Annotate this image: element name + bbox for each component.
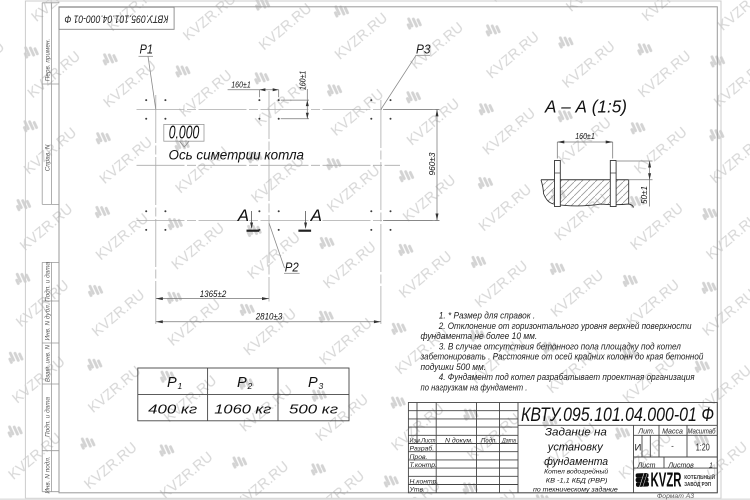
svg-text:Котел водогрейный: Котел водогрейный — [544, 468, 609, 476]
svg-text:400 кг: 400 кг — [148, 403, 197, 417]
svg-text:забетонировать . Расстояние от: забетонировать . Расстояние от осей край… — [420, 352, 704, 362]
svg-text:установку: установку — [547, 441, 604, 453]
svg-text:Подп.: Подп. — [481, 437, 497, 445]
svg-text:фундамента не более 10 мм.: фундамента не более 10 мм. — [421, 331, 538, 341]
svg-text:1060 кг: 1060 кг — [214, 403, 271, 417]
svg-text:N докум.: N докум. — [445, 437, 473, 445]
svg-text:И: И — [634, 443, 641, 454]
svg-text:Лит.: Лит. — [637, 428, 654, 435]
svg-text:Взам. инв. N: Взам. инв. N — [44, 345, 51, 383]
svg-text:Изм.Лист: Изм.Лист — [410, 438, 436, 445]
svg-text:500 кг: 500 кг — [289, 403, 338, 417]
svg-text:KVZR: KVZR — [651, 470, 682, 492]
svg-text:Инв. N дубл.: Инв. N дубл. — [43, 304, 51, 341]
svg-text:Ось симетрии котла: Ось симетрии котла — [169, 148, 305, 163]
svg-text:50±1: 50±1 — [639, 186, 649, 204]
svg-text:3. В случае отсутствия бетонно: 3. В случае отсутствия бетонного пола пл… — [439, 341, 682, 351]
svg-text:Подп. и дата: Подп. и дата — [43, 262, 51, 302]
svg-text:160±1: 160±1 — [231, 80, 251, 90]
svg-text:P1: P1 — [140, 43, 154, 57]
svg-text:Р: Р — [237, 375, 247, 391]
svg-text:А: А — [310, 206, 322, 225]
svg-text:1:20: 1:20 — [696, 443, 710, 454]
svg-text:КВТУ.095.101.04.000-01 Ф: КВТУ.095.101.04.000-01 Ф — [64, 12, 168, 24]
svg-text:1365±2: 1365±2 — [200, 289, 227, 299]
svg-text:по нагрузкам на фундамент .: по нагрузкам на фундамент . — [421, 382, 528, 392]
svg-text:Листов: Листов — [667, 462, 694, 469]
svg-text:Масса: Масса — [662, 428, 683, 435]
svg-text:960±3: 960±3 — [427, 152, 437, 175]
svg-text:2. Отклонение от горизонтально: 2. Отклонение от горизонтального уровня … — [438, 321, 692, 331]
svg-text:Инв. N подл.: Инв. N подл. — [43, 456, 51, 493]
svg-text:А – А (1:5): А – А (1:5) — [544, 97, 627, 117]
svg-text:1: 1 — [709, 462, 713, 469]
svg-text:4. Фундамент под котел разраба: 4. Фундамент под котел разрабатывает про… — [439, 372, 695, 382]
svg-text:Задание на: Задание на — [545, 427, 607, 439]
svg-text:160±1: 160±1 — [575, 131, 595, 141]
svg-text:0.000: 0.000 — [169, 123, 200, 143]
svg-text:P3: P3 — [416, 42, 431, 56]
svg-text:КВТУ.095.101.04.000-01 Ф: КВТУ.095.101.04.000-01 Ф — [521, 405, 714, 426]
svg-text:ЗАВОД РЭП: ЗАВОД РЭП — [684, 482, 711, 488]
svg-text:-: - — [671, 441, 674, 450]
svg-text:Лист: Лист — [636, 462, 655, 469]
svg-text:Формат А3: Формат А3 — [657, 493, 694, 500]
svg-text:КОТЕЛЬНЫЙ: КОТЕЛЬНЫЙ — [684, 473, 715, 481]
svg-text:1: 1 — [178, 381, 183, 391]
svg-text:P2: P2 — [285, 261, 299, 275]
svg-text:160±1: 160±1 — [297, 70, 307, 90]
svg-text:Справ. N: Справ. N — [44, 144, 51, 171]
svg-text:Т.контр.: Т.контр. — [410, 462, 438, 469]
svg-text:Масштаб: Масштаб — [688, 427, 717, 435]
svg-text:Перв. примен.: Перв. примен. — [44, 39, 51, 81]
svg-text:Р: Р — [167, 375, 177, 391]
svg-text:Р: Р — [308, 375, 318, 391]
svg-text:Пров.: Пров. — [410, 454, 428, 461]
svg-text:3: 3 — [319, 381, 324, 391]
svg-text:1. * Размер для справок .: 1. * Размер для справок . — [439, 311, 535, 321]
svg-text:2: 2 — [247, 381, 253, 391]
svg-text:Дата: Дата — [501, 438, 516, 445]
svg-text:2810±3: 2810±3 — [255, 312, 282, 322]
svg-text:Подп. и дата: Подп. и дата — [43, 397, 51, 437]
svg-text:Н.контр.: Н.контр. — [410, 479, 439, 486]
svg-text:по техническому задание: по техническому задание — [533, 486, 618, 494]
svg-text:КВ -1,1 КБД (РВР): КВ -1,1 КБД (РВР) — [546, 478, 608, 485]
svg-text:А: А — [237, 206, 249, 225]
svg-text:Разраб.: Разраб. — [410, 445, 435, 453]
svg-text:фундамента: фундамента — [544, 456, 608, 468]
svg-text:подушки 500 мм.: подушки 500 мм. — [421, 362, 487, 372]
svg-text:Утв.: Утв. — [409, 487, 426, 494]
